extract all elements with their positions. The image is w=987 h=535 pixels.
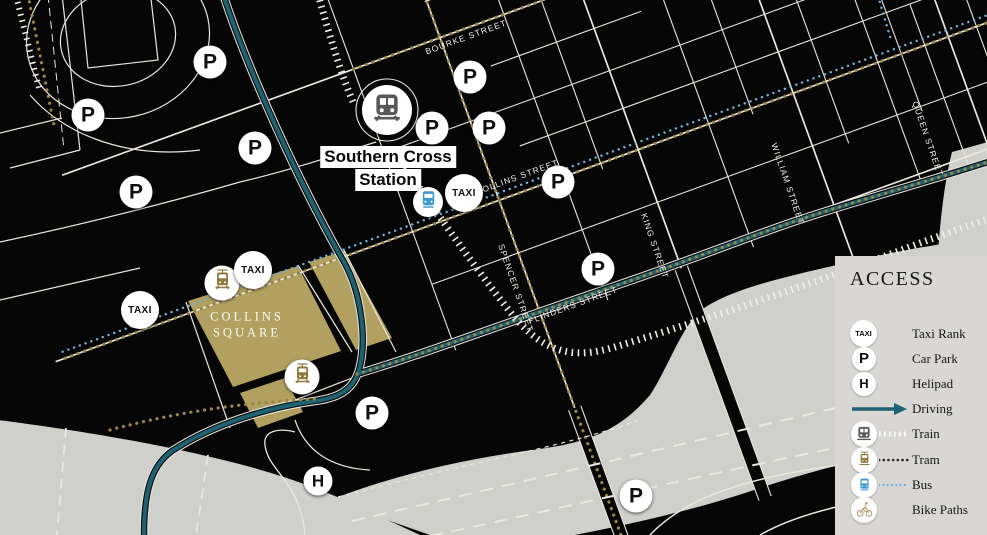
tram-icon [210,269,234,298]
car-park-label: P [248,136,262,160]
car-park-marker[interactable]: P [72,99,105,132]
legend-rows: TAXI Taxi Rank P Car Park H Helipad [850,321,987,523]
bike-icon [851,497,877,523]
street-name-label: Spencer Street [496,243,536,334]
helipad-label: H [312,471,324,491]
taxi-rank-marker[interactable]: TAXI [234,251,272,289]
taxi-label: TAXI [452,188,476,199]
car-park-marker[interactable]: P [194,46,227,79]
car-park-label: P [591,257,605,281]
station-label: Southern Cross Station [320,146,456,192]
tram-icon [851,447,877,473]
legend-title: ACCESS [850,268,987,291]
taxi-rank-marker[interactable]: TAXI [121,291,159,329]
train-station-marker[interactable] [362,85,412,135]
car-park-label: P [463,65,477,89]
street-name-label: Bourke Street [424,18,508,57]
car-park-label: P [365,401,379,425]
car-park-marker[interactable]: P [454,61,487,94]
car-park-marker[interactable]: P [582,253,615,286]
access-map: Bourke StreetCollins StreetFlinders Stre… [0,0,987,535]
collins-square-label: COLLINS SQUARE [210,309,284,340]
bus-stop-marker[interactable] [413,187,443,217]
legend-row-taxi-rank: TAXI Taxi Rank [850,321,987,346]
car-park-label: P [81,103,95,127]
tram-line-sample [879,457,909,463]
taxi-icon: TAXI [850,320,877,347]
street-name-label: Flinders Street [527,284,619,326]
taxi-label: TAXI [241,265,265,276]
car-park-marker[interactable]: P [620,480,653,513]
legend-row-train: Train [850,422,987,447]
train-icon [370,91,404,130]
driving-arrow-icon [850,402,908,416]
taxi-label: TAXI [128,305,152,316]
legend-panel: ACCESS TAXI Taxi Rank P Car Park H Helip… [835,256,987,535]
car-park-marker[interactable]: P [356,397,389,430]
tram-stop-marker[interactable] [285,360,320,395]
car-park-label: P [425,116,439,140]
car-park-label: P [482,116,496,140]
legend-row-tram: Tram [850,447,987,472]
bus-line-sample [879,482,909,488]
bus-icon [418,189,439,215]
street-name-label: William Street [769,142,807,227]
car-park-label: P [129,180,143,204]
car-park-marker[interactable]: P [473,112,506,145]
legend-row-car-park: P Car Park [850,346,987,371]
car-park-marker[interactable]: P [416,112,449,145]
train-line-sample [879,430,909,438]
car-park-icon: P [852,347,876,371]
helipad-marker[interactable]: H [304,467,333,496]
helipad-icon: H [852,372,876,396]
legend-row-bus: Bus [850,472,987,497]
street-name-label: Queen Street [910,100,945,178]
car-park-label: P [551,170,565,194]
street-name-label: King Street [639,212,671,280]
legend-row-bike-paths: Bike Paths [850,497,987,522]
car-park-marker[interactable]: P [542,166,575,199]
legend-row-driving: Driving [850,397,987,422]
legend-row-helipad: H Helipad [850,371,987,396]
bus-icon [851,472,877,498]
car-park-label: P [203,50,217,74]
car-park-label: P [629,484,643,508]
car-park-marker[interactable]: P [120,176,153,209]
taxi-rank-marker[interactable]: TAXI [445,174,483,212]
tram-icon [290,363,314,392]
car-park-marker[interactable]: P [239,132,272,165]
train-icon [851,421,877,447]
